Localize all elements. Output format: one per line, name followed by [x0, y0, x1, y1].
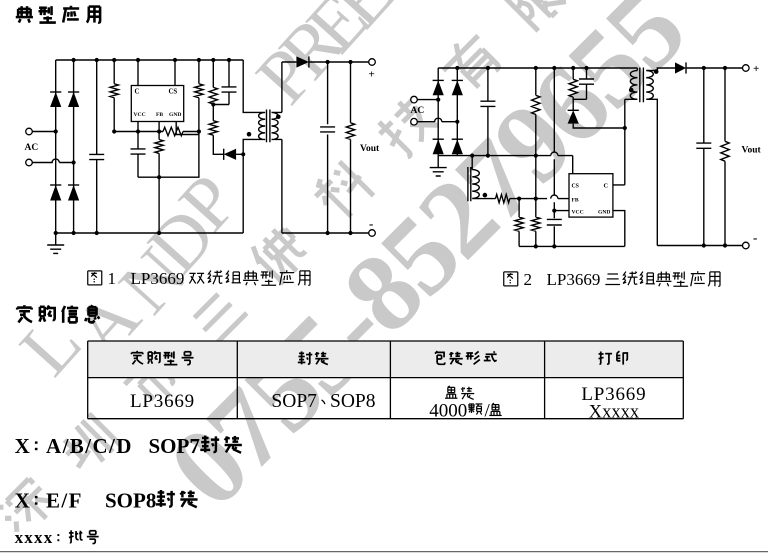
svg-text:-: - [753, 230, 757, 245]
svg-text:SOP8: SOP8 [330, 391, 376, 412]
svg-text:2: 2 [524, 270, 533, 289]
svg-text:-: - [369, 216, 373, 231]
svg-text:CS: CS [169, 89, 178, 96]
svg-text:CS: CS [572, 184, 579, 190]
svg-text:C: C [604, 183, 609, 190]
svg-text:AC: AC [25, 143, 39, 153]
svg-text:X: X [15, 434, 30, 458]
svg-text:FB: FB [156, 112, 163, 118]
svg-text:VCC: VCC [572, 210, 584, 216]
svg-text:LP3669: LP3669 [130, 391, 195, 412]
svg-text:LP3669: LP3669 [547, 270, 601, 289]
svg-text:X: X [15, 489, 30, 513]
svg-text:Vout: Vout [360, 144, 380, 154]
svg-text:AC: AC [411, 106, 425, 116]
svg-text:4000: 4000 [429, 401, 467, 422]
svg-text:E/F: E/F [46, 489, 83, 513]
svg-text:SOP7: SOP7 [149, 434, 200, 458]
svg-text:VCC: VCC [134, 112, 146, 118]
svg-text:+: + [753, 63, 759, 75]
svg-text:/: / [485, 401, 491, 422]
svg-text:SOP8: SOP8 [105, 489, 156, 513]
svg-text:SOP7: SOP7 [271, 391, 317, 412]
svg-text:C: C [135, 89, 140, 96]
svg-text:Vout: Vout [742, 146, 762, 156]
svg-text:xxxx: xxxx [15, 528, 54, 547]
svg-text:LP3669: LP3669 [131, 269, 185, 288]
svg-text:A/B/C/D: A/B/C/D [46, 434, 133, 458]
svg-text:Xxxxx: Xxxxx [589, 403, 640, 423]
svg-text:GND: GND [598, 210, 610, 216]
svg-text:+: + [369, 69, 375, 81]
svg-text:GND: GND [169, 112, 181, 118]
svg-text:FB: FB [572, 198, 579, 204]
svg-text:1: 1 [108, 269, 117, 288]
